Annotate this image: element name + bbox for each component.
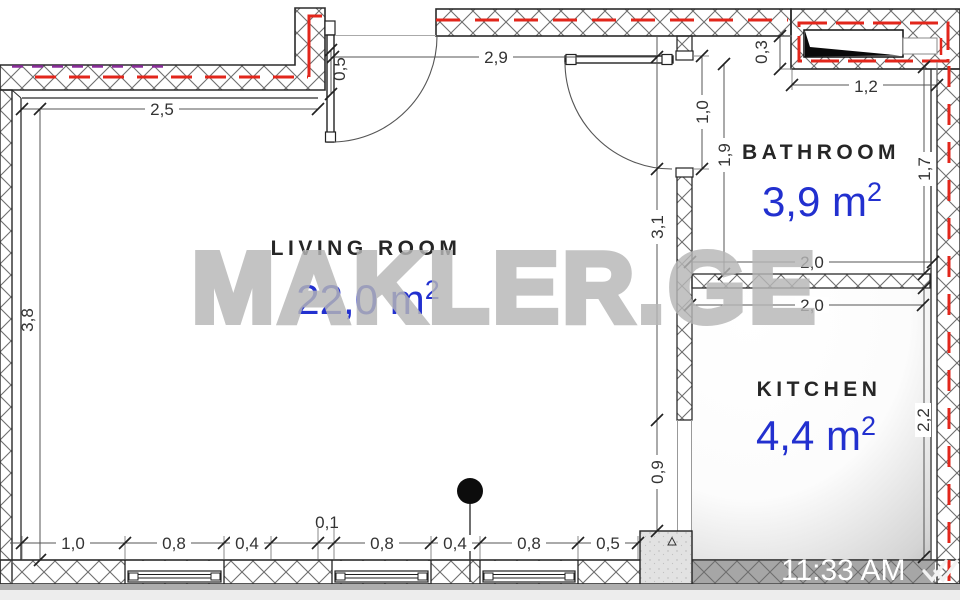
svg-text:0,9: 0,9	[648, 460, 667, 484]
svg-text:0,1: 0,1	[315, 513, 339, 532]
svg-text:1,0: 1,0	[693, 100, 712, 124]
svg-text:3,9 m2: 3,9 m2	[762, 177, 882, 225]
svg-text:0,5: 0,5	[596, 534, 620, 553]
svg-text:1,2: 1,2	[854, 77, 878, 96]
svg-text:2,9: 2,9	[484, 48, 508, 67]
svg-text:BATHROOM: BATHROOM	[742, 141, 900, 164]
svg-text:1,7: 1,7	[915, 157, 934, 181]
svg-text:1,9: 1,9	[715, 143, 734, 167]
svg-text:0,4: 0,4	[235, 534, 259, 553]
svg-text:0,4: 0,4	[443, 534, 467, 553]
svg-text:MAKLER.GE: MAKLER.GE	[192, 232, 819, 344]
svg-text:1,0: 1,0	[61, 534, 85, 553]
svg-text:0,5: 0,5	[330, 57, 349, 81]
svg-text:0,3: 0,3	[752, 40, 771, 64]
svg-text:11:33 AM: 11:33 AM	[781, 554, 906, 587]
svg-text:2,2: 2,2	[914, 408, 933, 432]
svg-text:2,5: 2,5	[150, 100, 174, 119]
svg-text:4,4 m2: 4,4 m2	[756, 411, 876, 459]
svg-text:0,8: 0,8	[517, 534, 541, 553]
svg-text:0,8: 0,8	[162, 534, 186, 553]
svg-text:0,8: 0,8	[370, 534, 394, 553]
svg-text:KITCHEN: KITCHEN	[757, 378, 882, 401]
svg-text:3,8: 3,8	[18, 308, 37, 332]
